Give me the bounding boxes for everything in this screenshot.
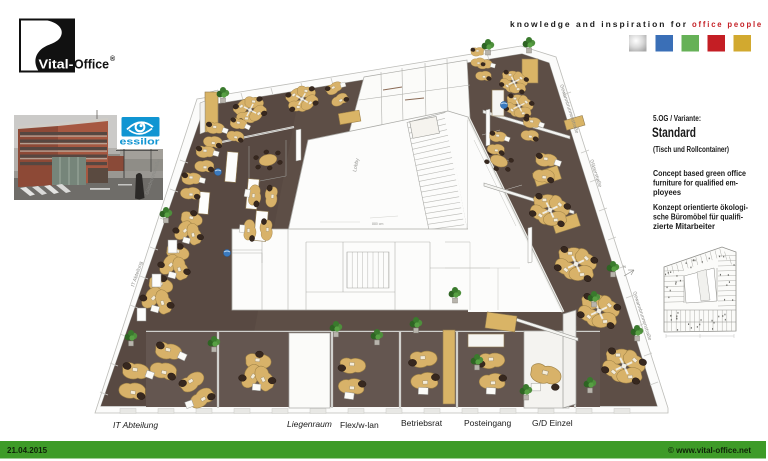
- svg-text:essilor: essilor: [120, 137, 161, 147]
- svg-text:Office: Office: [74, 57, 109, 72]
- svg-text:Vital-: Vital-: [39, 57, 74, 72]
- svg-text:© www.vital-office.net: © www.vital-office.net: [668, 446, 751, 455]
- svg-text:IT Abteilung: IT Abteilung: [113, 420, 158, 430]
- svg-text:(Tisch und Rollcontainer): (Tisch und Rollcontainer): [653, 145, 729, 154]
- svg-text:office people: office people: [692, 19, 763, 29]
- svg-text:Posteingang: Posteingang: [464, 418, 512, 428]
- svg-text:knowledge and inspiration for: knowledge and inspiration for: [510, 19, 688, 29]
- svg-text:Concept based green office: Concept based green office: [653, 169, 746, 178]
- svg-text:furniture for qualified em-: furniture for qualified em-: [653, 179, 738, 188]
- svg-text:880 cm: 880 cm: [372, 222, 384, 226]
- svg-text:5.OG / Variante:: 5.OG / Variante:: [653, 114, 701, 123]
- svg-text:sche Büromöbel für qualifi-: sche Büromöbel für qualifi-: [653, 213, 743, 222]
- svg-text:21.04.2015: 21.04.2015: [7, 446, 48, 455]
- svg-text:Flex/w-lan: Flex/w-lan: [340, 420, 379, 430]
- svg-text:Betriebsrat: Betriebsrat: [401, 418, 443, 428]
- svg-text:ployees: ployees: [653, 188, 682, 197]
- svg-text:®: ®: [110, 55, 116, 63]
- svg-text:Standard: Standard: [652, 124, 696, 140]
- svg-text:zierte Mitarbeiter: zierte Mitarbeiter: [653, 222, 715, 231]
- svg-text:Konzept orientierte ökologi-: Konzept orientierte ökologi-: [653, 203, 748, 212]
- svg-text:G/D Einzel: G/D Einzel: [532, 418, 573, 428]
- svg-text:N: N: [623, 264, 626, 269]
- svg-text:Liegenraum: Liegenraum: [287, 419, 332, 429]
